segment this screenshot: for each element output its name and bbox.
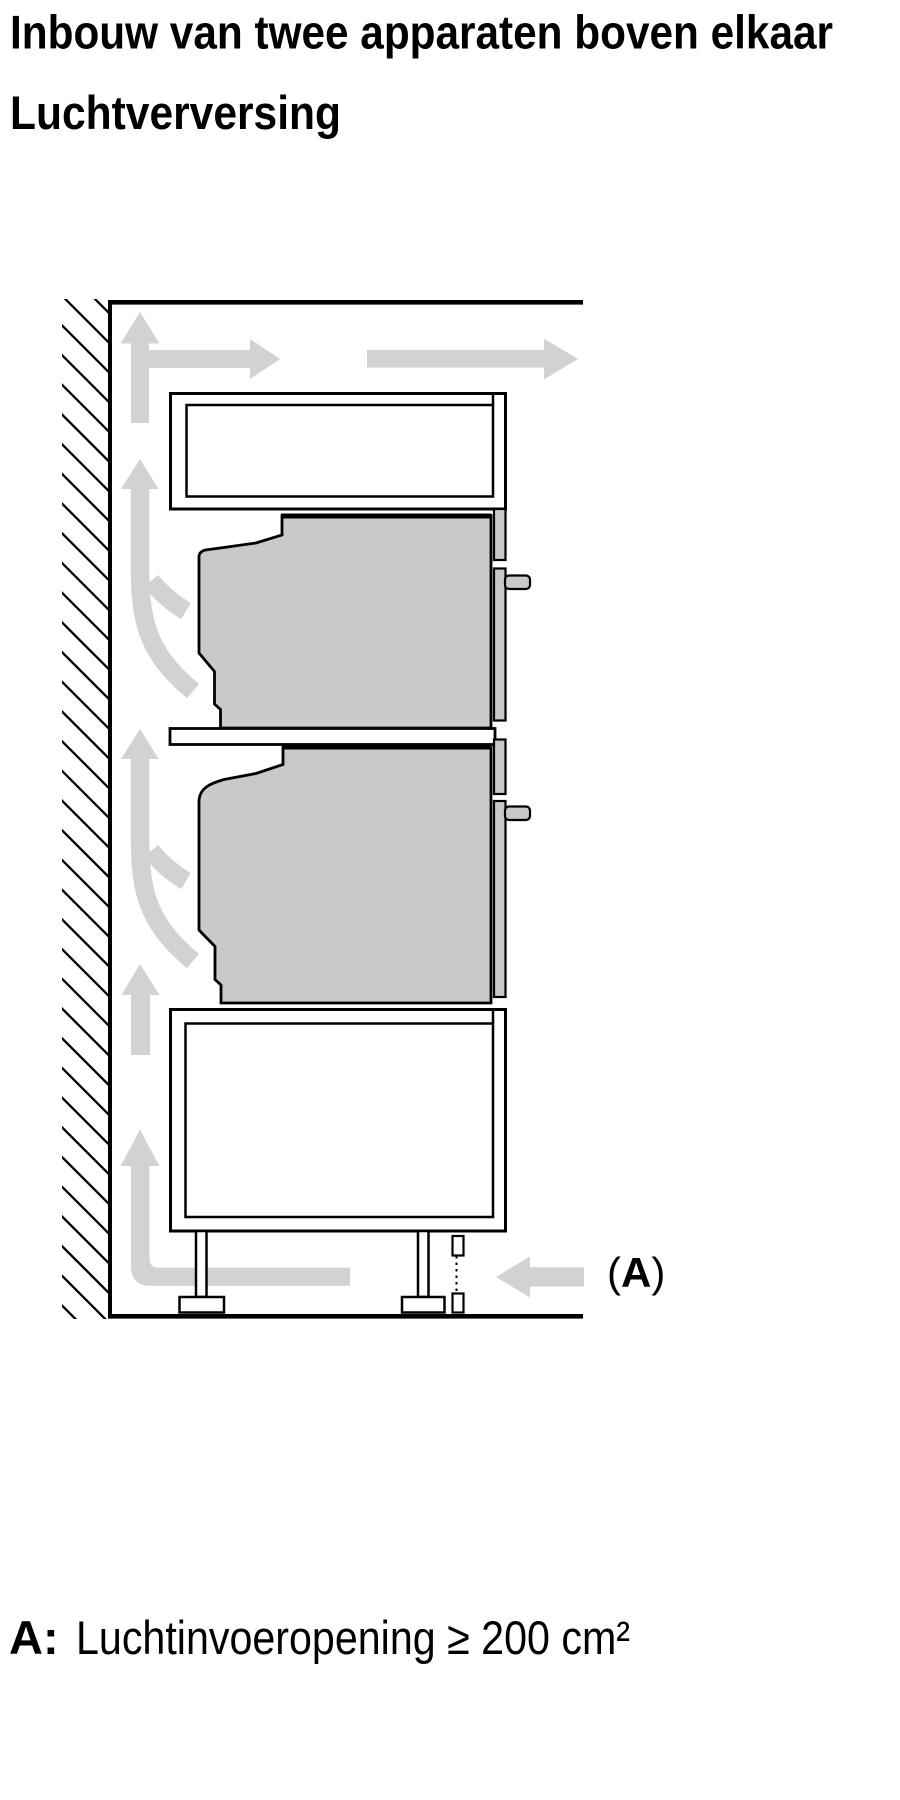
svg-text:Inbouw van twee apparaten bove: Inbouw van twee apparaten boven elkaar	[10, 6, 833, 59]
svg-text:(A): (A)	[607, 1249, 665, 1296]
svg-text:A:: A:	[9, 1611, 59, 1664]
svg-text:Luchtinvoeropening ≥ 200 cm²: Luchtinvoeropening ≥ 200 cm²	[76, 1611, 630, 1664]
svg-text:Luchtverversing: Luchtverversing	[10, 86, 341, 139]
